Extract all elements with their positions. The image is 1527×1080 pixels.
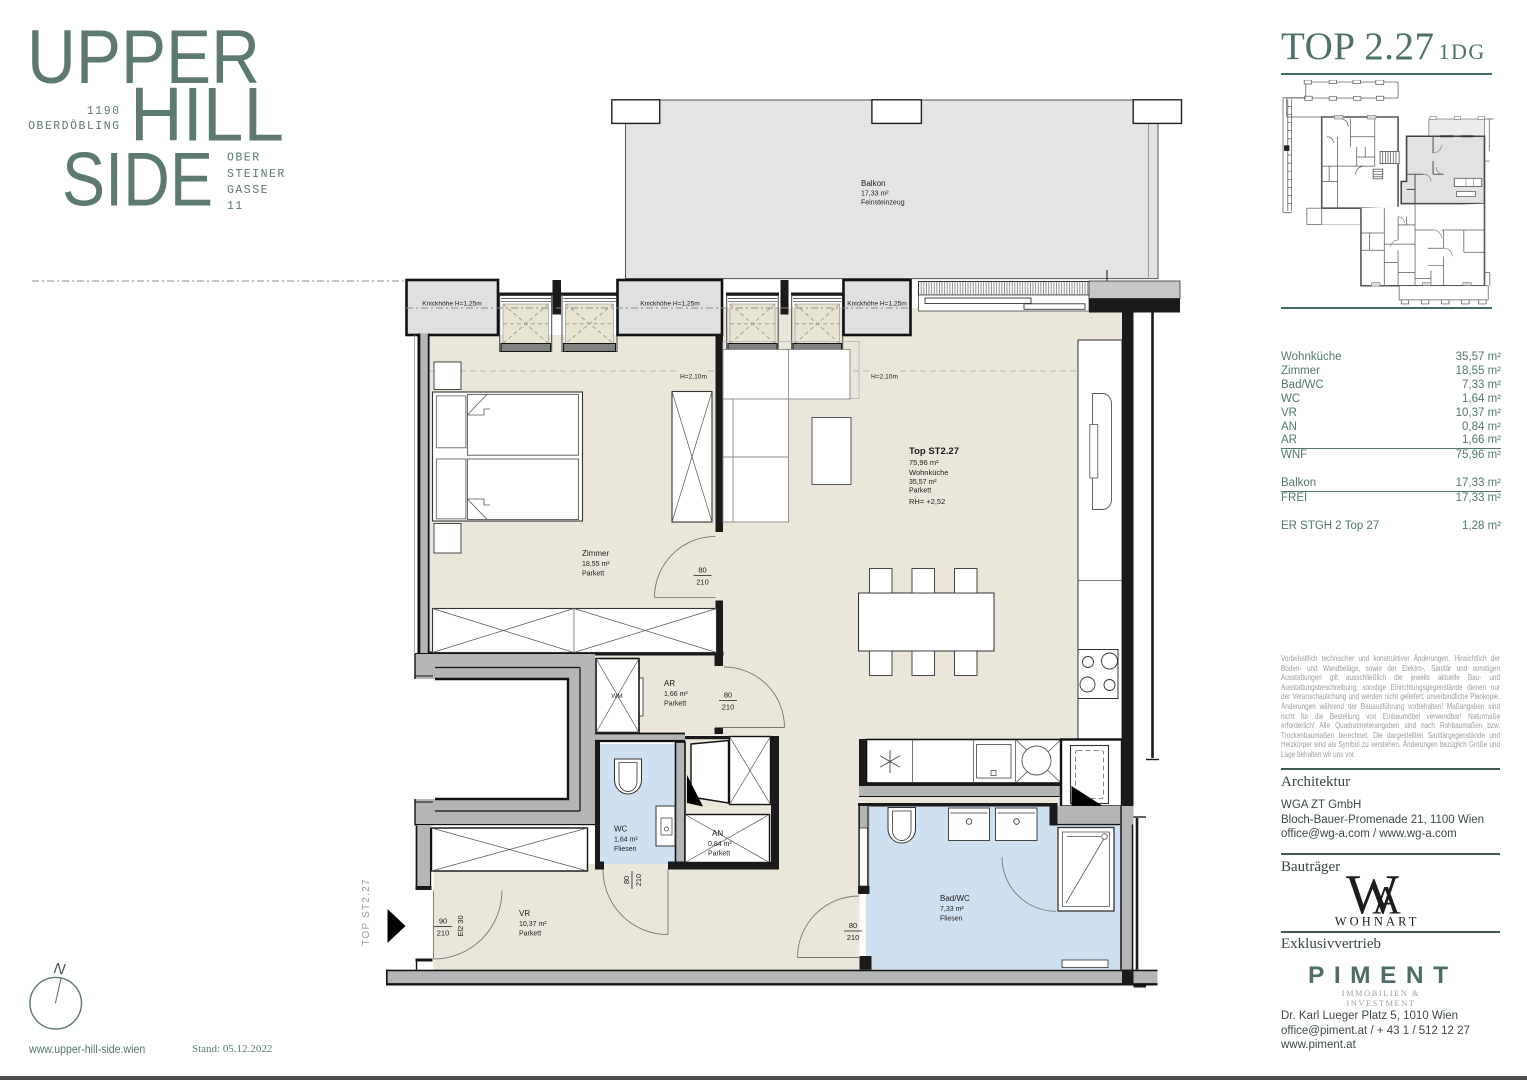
svg-text:17,33 m²: 17,33 m² — [861, 191, 889, 198]
svg-text:Knickhöhe H=1,25m: Knickhöhe H=1,25m — [847, 301, 907, 308]
svg-text:Parkett: Parkett — [708, 851, 730, 858]
svg-text:35,57 m²: 35,57 m² — [909, 479, 937, 486]
svg-text:80: 80 — [849, 921, 857, 930]
svg-text:75,96 m²: 75,96 m² — [909, 458, 939, 467]
svg-text:TOP ST2.27: TOP ST2.27 — [361, 878, 372, 945]
svg-text:H=2,10m: H=2,10m — [680, 374, 707, 381]
svg-text:Top ST2.27: Top ST2.27 — [909, 446, 959, 457]
svg-text:90: 90 — [439, 917, 447, 926]
svg-text:WC: WC — [614, 825, 628, 834]
svg-text:18,55 m²: 18,55 m² — [582, 561, 610, 568]
svg-text:AN: AN — [712, 829, 723, 838]
svg-text:Parkett: Parkett — [909, 488, 931, 495]
svg-text:Zimmer: Zimmer — [582, 549, 609, 558]
svg-text:80: 80 — [622, 876, 631, 884]
svg-text:210: 210 — [437, 929, 450, 938]
svg-text:10,37 m²: 10,37 m² — [519, 921, 547, 928]
svg-text:210: 210 — [696, 578, 709, 587]
svg-text:Fliesen: Fliesen — [940, 916, 963, 923]
svg-text:210: 210 — [722, 703, 735, 712]
svg-text:Fliesen: Fliesen — [614, 846, 637, 853]
svg-text:210: 210 — [847, 933, 860, 942]
svg-text:WM: WM — [611, 693, 622, 700]
svg-text:Bad/WC: Bad/WC — [940, 894, 970, 903]
svg-text:1,64 m²: 1,64 m² — [614, 837, 638, 844]
svg-text:El2 30: El2 30 — [456, 915, 465, 936]
svg-text:80: 80 — [698, 566, 706, 575]
svg-text:Parkett: Parkett — [519, 931, 541, 938]
svg-text:AR: AR — [664, 679, 675, 688]
svg-text:H=2,10m: H=2,10m — [871, 374, 898, 381]
svg-text:210: 210 — [634, 874, 643, 887]
svg-text:Wohnküche: Wohnküche — [909, 468, 948, 477]
svg-text:Knickhöhe H=1,25m: Knickhöhe H=1,25m — [422, 301, 482, 308]
svg-text:Parkett: Parkett — [664, 701, 686, 708]
svg-text:80: 80 — [724, 691, 732, 700]
svg-text:Knickhöhe H=1,25m: Knickhöhe H=1,25m — [640, 301, 700, 308]
svg-text:7,33 m²: 7,33 m² — [940, 906, 964, 913]
svg-text:Balkon: Balkon — [861, 179, 885, 188]
svg-text:VR: VR — [519, 909, 530, 918]
svg-text:Parkett: Parkett — [582, 571, 604, 578]
svg-text:1,66 m²: 1,66 m² — [664, 691, 688, 698]
svg-text:Feinsteinzeug: Feinsteinzeug — [861, 200, 905, 207]
svg-text:RH= +2,52: RH= +2,52 — [909, 497, 945, 506]
svg-text:0,84 m²: 0,84 m² — [708, 841, 732, 848]
